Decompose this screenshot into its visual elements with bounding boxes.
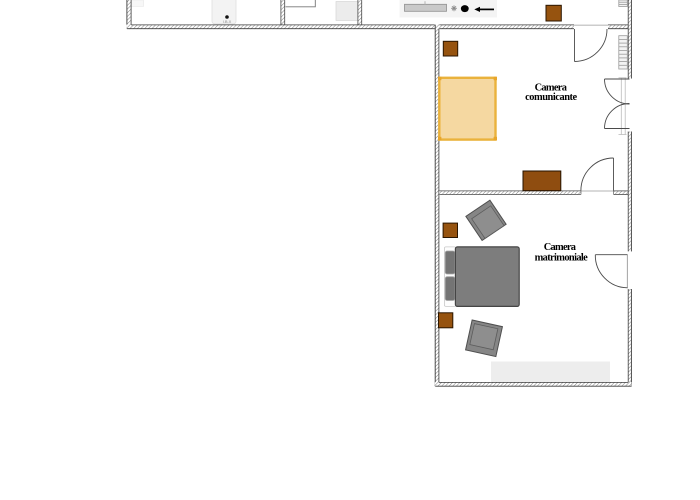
svg-text:matrimoniale: matrimoniale	[535, 252, 589, 263]
svg-text:I.B.X: I.B.X	[223, 19, 232, 24]
svg-text:comunicante: comunicante	[525, 92, 577, 103]
